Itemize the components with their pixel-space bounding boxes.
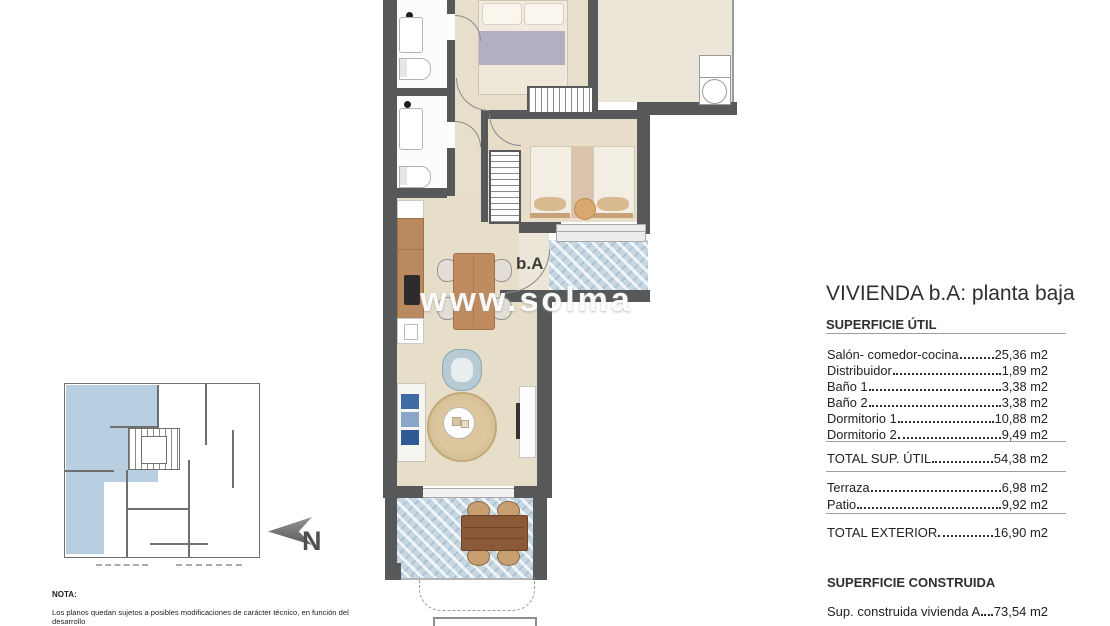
keyplan-wall [126, 508, 188, 510]
surface-summary: VIVIENDA b.A: planta baja SUPERFICIE ÚTI… [826, 282, 1068, 332]
area-row-label: Distribuidor [827, 363, 892, 378]
area-row-label: Baño 2 [827, 395, 868, 410]
area-row-value: 25,36 m2 [995, 347, 1048, 362]
total-util-row: TOTAL SUP. ÚTIL 54,38 m2 [827, 451, 1048, 466]
area-row-value: 10,88 m2 [995, 411, 1048, 426]
dotted-leader [869, 389, 1001, 391]
area-row: Distribuidor 1,89 m2 [827, 363, 1048, 378]
area-row: Baño 1 3,38 m2 [827, 379, 1048, 394]
total-util-label: TOTAL SUP. ÚTIL [827, 451, 931, 466]
area-row: Baño 2 3,38 m2 [827, 395, 1048, 410]
area-row-label: Baño 1 [827, 379, 868, 394]
area-row-value: 3,38 m2 [1002, 395, 1048, 410]
area-row-value: 9,92 m2 [1002, 497, 1048, 512]
area-row-value: 1,89 m2 [1002, 363, 1048, 378]
dotted-leader [898, 437, 1001, 439]
area-row-label: Dormitorio 2 [827, 427, 897, 442]
total-exterior-label: TOTAL EXTERIOR [827, 525, 937, 540]
area-row: Dormitorio 2 9,49 m2 [827, 427, 1048, 442]
total-exterior-row: TOTAL EXTERIOR 16,90 m2 [827, 525, 1048, 540]
dotted-leader [932, 461, 993, 463]
dotted-leader [869, 405, 1001, 407]
divider-line [826, 513, 1066, 514]
dotted-leader [981, 614, 993, 616]
area-row-value: 6,98 m2 [1002, 480, 1048, 495]
dotted-leader [893, 373, 1001, 375]
area-row-label: Dormitorio 1 [827, 411, 897, 426]
total-exterior-value: 16,90 m2 [994, 525, 1048, 540]
area-row: Patio 9,92 m2 [827, 497, 1048, 512]
divider-line [826, 471, 1066, 472]
construida-value: 73,54 m2 [994, 604, 1048, 619]
keyplan-wall [150, 543, 208, 545]
keyplan-wall [205, 383, 207, 445]
divider-line [826, 333, 1066, 334]
page-title: VIVIENDA b.A: planta baja [826, 282, 1068, 306]
area-row-label: Salón- comedor-cocina [827, 347, 959, 362]
total-util-value: 54,38 m2 [994, 451, 1048, 466]
keyplan-wall [232, 430, 234, 488]
divider-line [826, 441, 1066, 442]
dotted-leader [857, 507, 1001, 509]
note-block: NOTA: Los planos quedan sujetos a posibl… [52, 590, 382, 626]
area-row-label: Patio [827, 497, 856, 512]
superficie-construida-heading: SUPERFICIE CONSTRUIDA [827, 575, 995, 590]
area-row: Salón- comedor-cocina 25,36 m2 [827, 347, 1048, 362]
superficie-util-heading: SUPERFICIE ÚTIL [826, 317, 1068, 332]
construida-label: Sup. construida vivienda A [827, 604, 980, 619]
dotted-leader [938, 535, 993, 537]
dotted-leader [960, 357, 994, 359]
note-line: Los planos quedan sujetos a posibles mod… [52, 608, 382, 626]
area-row-value: 3,38 m2 [1002, 379, 1048, 394]
keyplan-elevator [141, 436, 167, 464]
area-row-label: Terraza [827, 480, 870, 495]
note-heading: NOTA: [52, 590, 382, 600]
floor-plan-sheet: b.A www.solma N VIVIENDA b.A: planta baj… [0, 0, 1110, 626]
dotted-leader [898, 421, 994, 423]
area-row: Dormitorio 1 10,88 m2 [827, 411, 1048, 426]
area-row: Terraza 6,98 m2 [827, 480, 1048, 495]
keyplan-wall [64, 470, 114, 472]
area-row-value: 9,49 m2 [1002, 427, 1048, 442]
north-label: N [302, 526, 322, 557]
keyplan-wall [126, 470, 128, 557]
dotted-leader [871, 490, 1001, 492]
construida-row: Sup. construida vivienda A 73,54 m2 [827, 604, 1048, 619]
keyplan-dashed-edge [176, 556, 242, 566]
keyplan-dashed-edge [96, 556, 148, 566]
